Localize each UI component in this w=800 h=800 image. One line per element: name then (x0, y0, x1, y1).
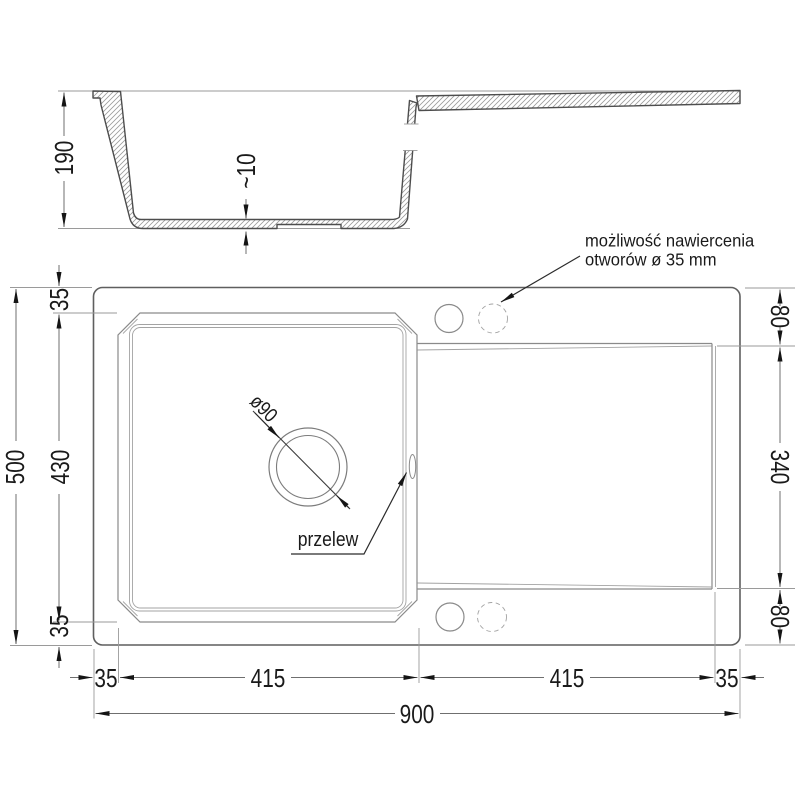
overflow-label: przelew (298, 528, 359, 550)
dim-deck-top-label: 80 (766, 305, 795, 328)
dim-bowl-width-label: 415 (251, 664, 286, 693)
sink-technical-drawing: 190 ~10 (0, 0, 800, 800)
dim-deck-bottom-label: 80 (766, 605, 795, 628)
dim-overall-height-label: 500 (1, 450, 30, 485)
dim-rim-bottom-label: 35 (45, 614, 74, 637)
dim-depth-label: 190 (50, 141, 79, 176)
dim-overall-width-label: 900 (400, 700, 435, 729)
dim-drainer-height-label: 340 (766, 450, 795, 485)
dim-rim-right-label: 35 (715, 664, 738, 693)
dim-bowl-height-label: 430 (46, 450, 75, 485)
drill-note-line1: możliwość nawiercenia (585, 230, 755, 251)
drill-note-line2: otworów ø 35 mm (585, 249, 716, 270)
dim-rim-top-label: 35 (45, 288, 74, 311)
dim-rim-left-label: 35 (94, 664, 117, 693)
dim-drainer-width-label: 415 (550, 664, 585, 693)
sink-technical-drawing-page: 190 ~10 (0, 0, 800, 800)
dim-bottom-thickness-label: ~10 (232, 153, 261, 188)
overflow-cutout (403, 124, 419, 151)
